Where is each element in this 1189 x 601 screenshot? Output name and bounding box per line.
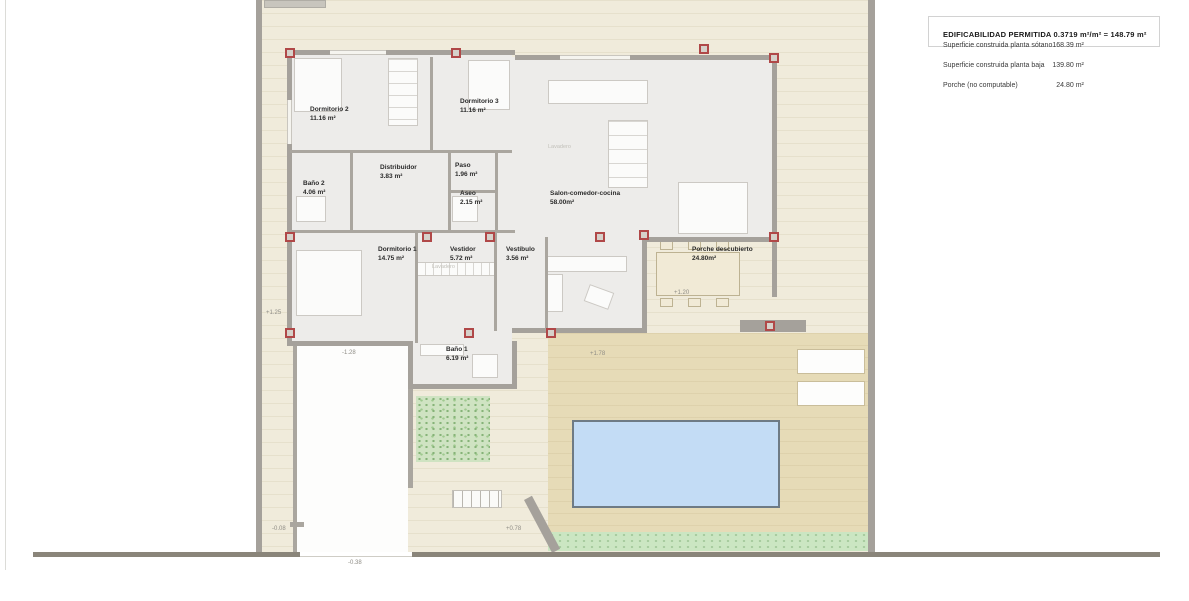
- column-marker: [422, 232, 432, 242]
- sun-lounger: [797, 349, 865, 374]
- kitchen-counter: [548, 80, 648, 104]
- wall-segment: [287, 341, 413, 346]
- bed-dormitorio1: [296, 250, 362, 316]
- bath2-fixture: [296, 196, 326, 222]
- column-marker: [699, 44, 709, 54]
- wall-segment: [772, 55, 777, 243]
- dining-table: [678, 182, 748, 234]
- room-label-banio1: Baño 16.19 m²: [446, 346, 468, 364]
- bath1-shower: [472, 354, 498, 378]
- faint-label-laundry: Lavadero: [432, 264, 455, 270]
- partition-wall: [350, 153, 353, 233]
- info-row-label: Porche (no computable): [943, 82, 1018, 89]
- driveway-gate-gap: [300, 552, 412, 557]
- info-panel-title: EDIFICABILIDAD PERMITIDA 0.3719 m²/m² = …: [943, 30, 1147, 39]
- sun-lounger: [797, 381, 865, 406]
- wall-segment: [408, 384, 517, 389]
- partition-wall: [290, 150, 512, 153]
- wall-segment: [408, 341, 413, 389]
- gate-object: [264, 0, 326, 8]
- column-marker: [285, 48, 295, 58]
- partition-wall: [430, 57, 433, 153]
- window: [287, 100, 292, 144]
- exterior-steps: [452, 490, 502, 508]
- window: [330, 50, 386, 55]
- column-marker: [639, 230, 649, 240]
- faint-label-laundry: Lavadero: [548, 144, 571, 150]
- room-label-dormitorio3: Dormitorio 311.16 m²: [460, 98, 499, 116]
- closet: [388, 58, 418, 126]
- room-label-porche: Porche descubierto24.80m²: [692, 246, 753, 264]
- column-marker: [765, 321, 775, 331]
- column-marker: [285, 328, 295, 338]
- driveway-right-wall: [408, 386, 413, 488]
- boundary-wall-left: [256, 0, 262, 556]
- swimming-pool: [572, 420, 780, 508]
- partition-wall: [290, 230, 515, 233]
- info-row: Superficie construida planta baja 139.80…: [943, 62, 1084, 69]
- wall-segment: [290, 522, 304, 527]
- column-marker: [769, 53, 779, 63]
- porch-chair: [660, 298, 673, 307]
- elevation-marker: -0.38: [348, 560, 362, 566]
- bed-dormitorio2: [294, 58, 342, 112]
- partition-wall: [545, 237, 548, 331]
- elevation-marker: -1.28: [342, 350, 356, 356]
- wall-segment: [287, 50, 515, 55]
- wall-segment: [642, 240, 647, 333]
- info-panel-rows: Superficie construida planta sótano 168.…: [943, 42, 1084, 102]
- column-marker: [485, 232, 495, 242]
- grass-strip: [548, 532, 868, 551]
- info-row: Porche (no computable) 24.80 m²: [943, 82, 1084, 89]
- page-edge-line: [5, 0, 6, 570]
- wall-segment: [512, 328, 647, 333]
- elevation-marker: +1.78: [590, 351, 605, 357]
- column-marker: [451, 48, 461, 58]
- info-row-value: 168.39 m²: [1052, 42, 1084, 49]
- room-label-aseo: Aseo2.15 m²: [460, 190, 482, 208]
- room-label-dormitorio2: Dormitorio 211.16 m²: [310, 106, 349, 124]
- driveway: [296, 344, 408, 556]
- elevation-marker: +1.20: [674, 290, 689, 296]
- column-marker: [769, 232, 779, 242]
- column-marker: [285, 232, 295, 242]
- sofa: [545, 256, 627, 272]
- room-label-distribuidor: Distribuidor3.83 m²: [380, 164, 417, 182]
- porch-chair: [688, 298, 701, 307]
- room-label-banio2: Baño 24.06 m²: [303, 180, 325, 198]
- column-marker: [595, 232, 605, 242]
- room-label-dormitorio1: Dormitorio 114.75 m²: [378, 246, 417, 264]
- info-row-value: 139.80 m²: [1052, 62, 1084, 69]
- info-row-value: 24.80 m²: [1056, 82, 1084, 89]
- buildability-info-panel: EDIFICABILIDAD PERMITIDA 0.3719 m²/m² = …: [928, 16, 1160, 47]
- kitchen-island: [608, 120, 648, 188]
- room-label-paso: Paso1.96 m²: [455, 162, 477, 180]
- porch-chair: [660, 241, 673, 250]
- column-marker: [464, 328, 474, 338]
- wall-segment: [287, 50, 292, 346]
- room-label-vestibulo: Vestíbulo3.56 m²: [506, 246, 535, 264]
- room-label-vestidor: Vestidor5.72 m²: [450, 246, 476, 264]
- partition-wall: [495, 153, 498, 233]
- window: [560, 55, 630, 60]
- info-row-label: Superficie construida planta baja: [943, 62, 1045, 69]
- info-row-label: Superficie construida planta sótano: [943, 42, 1052, 49]
- wall-segment: [515, 55, 777, 60]
- elevation-marker: +1.25: [266, 310, 281, 316]
- wall-segment: [772, 237, 777, 297]
- column-marker: [546, 328, 556, 338]
- wall-segment: [512, 341, 517, 389]
- vestidor-closet: [416, 262, 496, 276]
- room-label-salon: Salon-comedor-cocina58.00m²: [550, 190, 620, 208]
- info-row: Superficie construida planta sótano 168.…: [943, 42, 1084, 49]
- boundary-line-bottom: [33, 552, 1160, 557]
- floor-plan-canvas: Dormitorio 211.16 m² Dormitorio 311.16 m…: [0, 0, 1189, 601]
- wall-segment: [642, 237, 777, 242]
- porch-chair: [716, 298, 729, 307]
- partition-wall: [494, 233, 497, 331]
- partition-wall: [448, 153, 451, 233]
- elevation-marker: -0.08: [272, 526, 286, 532]
- garden-planter: [416, 396, 490, 462]
- boundary-wall-right: [868, 0, 875, 556]
- elevation-marker: +0.78: [506, 526, 521, 532]
